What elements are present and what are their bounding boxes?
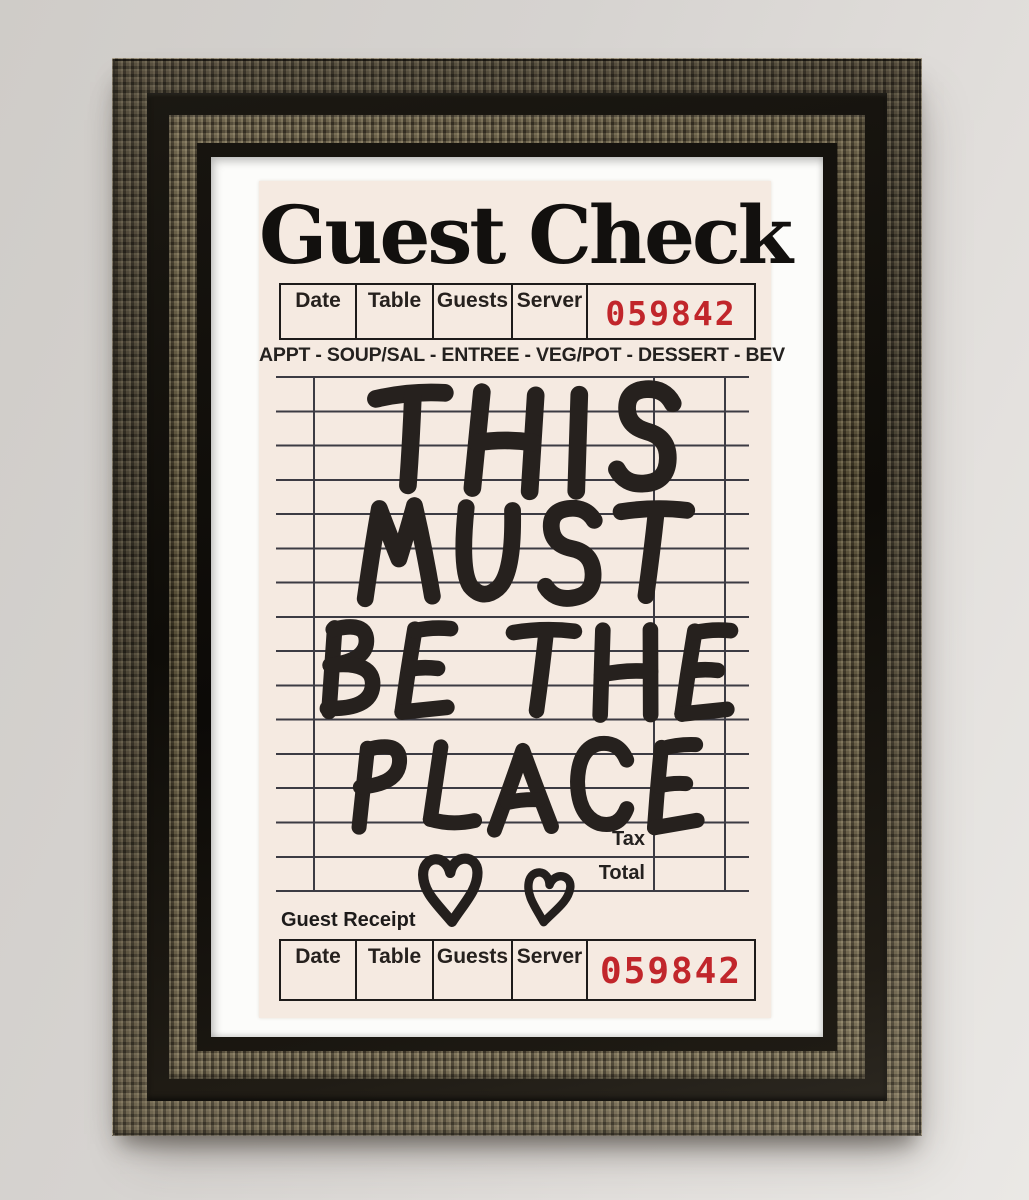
receipt-cell-guests: Guests xyxy=(434,941,513,999)
marker-letter-T xyxy=(504,616,581,722)
course-route-line: APPT - SOUP/SAL - ENTREE - VEG/POT - DES… xyxy=(259,344,771,367)
marker-letter-T xyxy=(367,377,456,498)
marker-letter-U xyxy=(447,496,527,610)
header-cell-table: Table xyxy=(357,285,434,338)
frame-inner-groove: Guest Check Date Table Guests Server 059… xyxy=(147,93,887,1101)
heart-doodle-icon xyxy=(415,848,486,940)
marker-letter-M xyxy=(355,493,442,608)
receipt-cell-server: Server xyxy=(513,941,588,999)
receipt-number: 059842 xyxy=(588,941,754,999)
check-title: Guest Check xyxy=(259,195,771,275)
marker-letter-S xyxy=(604,378,681,498)
header-cell-guests: Guests xyxy=(434,285,513,338)
header-cell-server: Server xyxy=(513,285,588,338)
message-line xyxy=(288,735,761,835)
marker-letter-S xyxy=(531,498,606,613)
receipt-cell-table: Table xyxy=(357,941,434,999)
frame-ornate-band: Guest Check Date Table Guests Server 059… xyxy=(169,115,865,1079)
frame-inner-lip: Guest Check Date Table Guests Server 059… xyxy=(197,143,837,1051)
marker-letter-C xyxy=(565,734,633,836)
marker-letter-I xyxy=(552,382,600,502)
marker-letter-E xyxy=(388,618,456,724)
marker-letter-H xyxy=(460,380,548,500)
marker-letter-E xyxy=(668,620,736,726)
check-number: 059842 xyxy=(588,285,754,338)
picture-frame: Guest Check Date Table Guests Server 059… xyxy=(112,58,922,1136)
marker-letter-P xyxy=(344,734,411,836)
message-line xyxy=(288,617,761,721)
message-line xyxy=(288,379,761,497)
receipt-cell-date: Date xyxy=(281,941,357,999)
mat-board: Guest Check Date Table Guests Server 059… xyxy=(211,157,823,1037)
receipt-table: Date Table Guests Server 059842 xyxy=(279,939,756,1001)
marker-letter-H xyxy=(586,618,664,725)
guest-receipt-label: Guest Receipt xyxy=(281,909,415,932)
header-cell-date: Date xyxy=(281,285,357,338)
header-table: Date Table Guests Server 059842 xyxy=(279,283,756,340)
marker-letter-T xyxy=(610,494,693,608)
marker-letter-B xyxy=(312,616,384,723)
heart-doodle-icon xyxy=(514,863,580,939)
message-line xyxy=(288,495,761,607)
guest-check-print: Guest Check Date Table Guests Server 059… xyxy=(259,181,771,1018)
wall: Guest Check Date Table Guests Server 059… xyxy=(0,0,1029,1200)
marker-letter-E xyxy=(638,736,705,838)
